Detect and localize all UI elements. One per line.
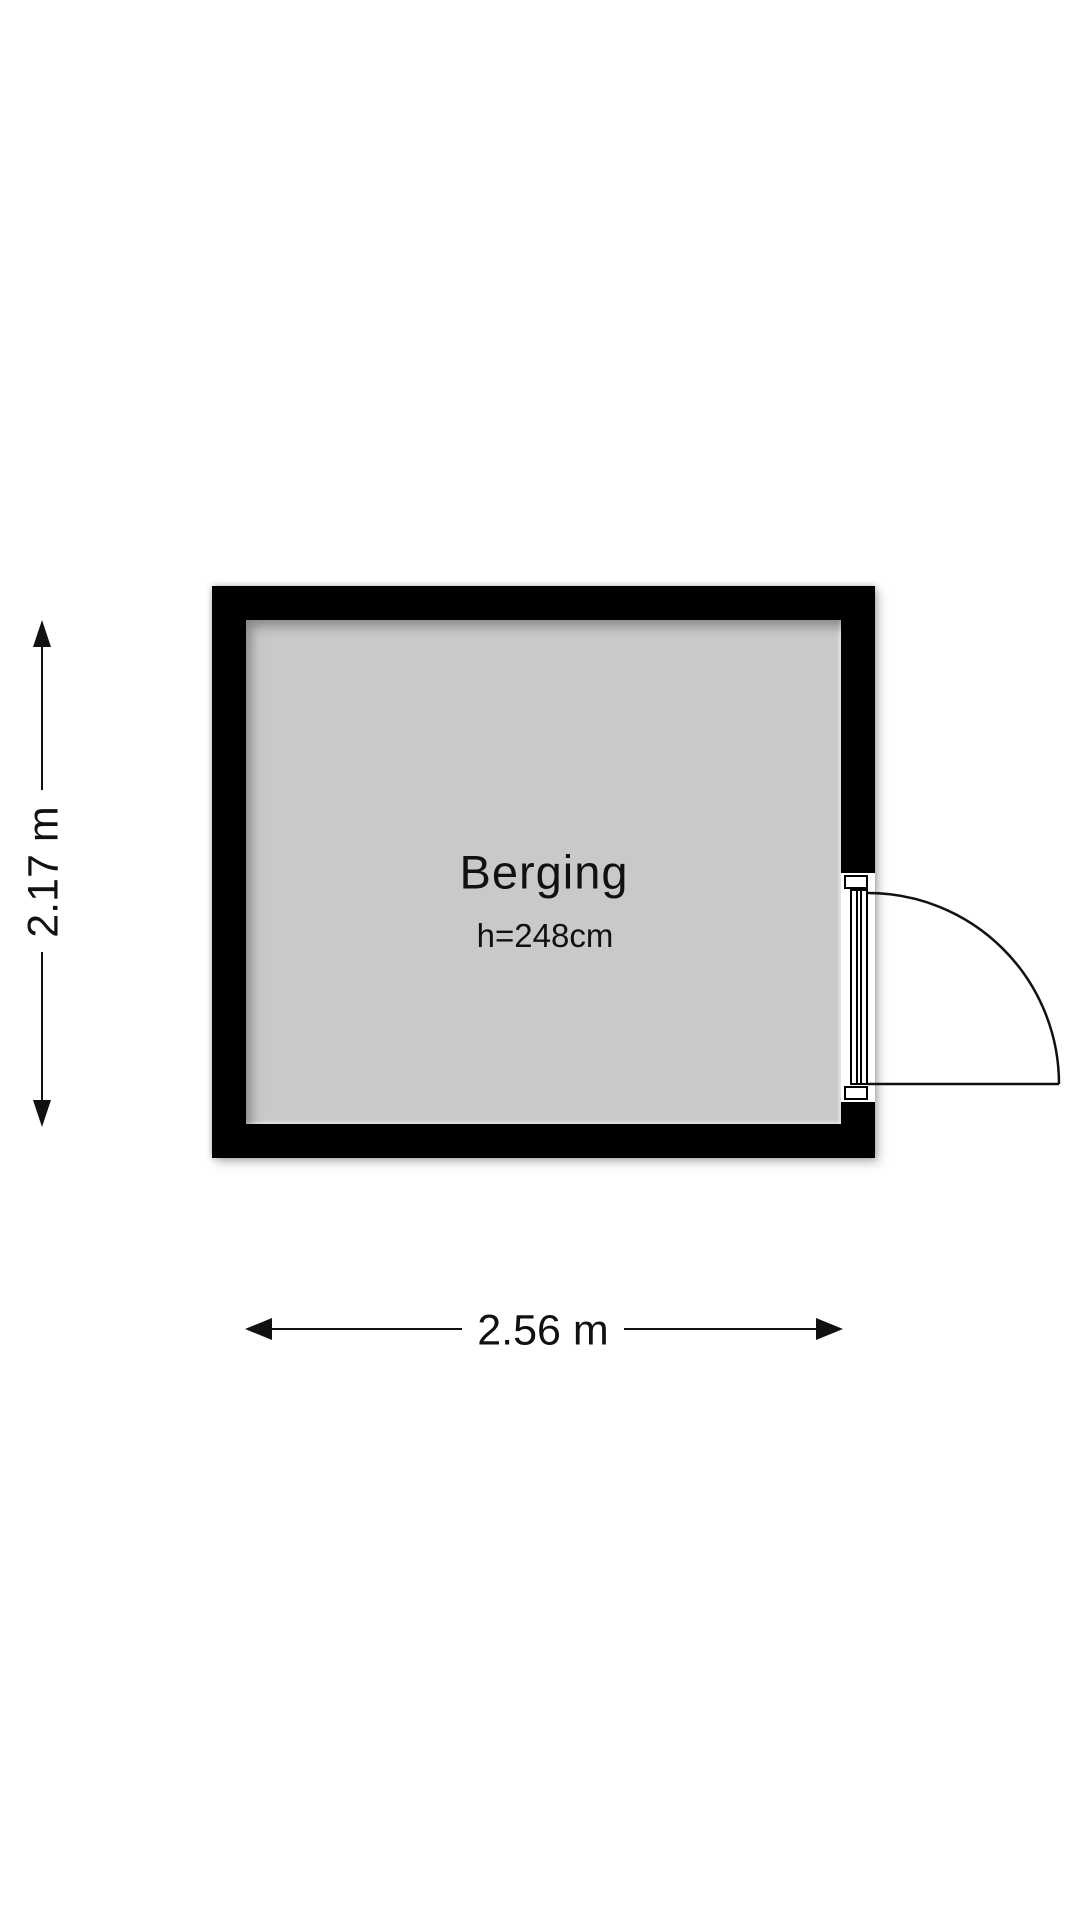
dimension-width-line-right xyxy=(624,1328,818,1330)
room-ceiling-height-label: h=248cm xyxy=(477,917,614,955)
floorplan-canvas: 2.17 m Berging h=248cm 2.56 m xyxy=(0,0,1080,1920)
door-jamb-bottom xyxy=(844,1086,868,1100)
dimension-height-line-upper xyxy=(41,645,43,790)
door-leaf-panel xyxy=(856,891,862,1083)
door-jamb-top xyxy=(844,875,868,889)
dimension-height-line-lower xyxy=(41,952,43,1102)
arrow-left-icon xyxy=(245,1318,272,1340)
arrow-right-icon xyxy=(816,1318,843,1340)
arrow-down-icon xyxy=(33,1100,51,1127)
room-name-label: Berging xyxy=(460,845,629,900)
dimension-height-label: 2.17 m xyxy=(20,806,69,937)
door-swing xyxy=(866,890,1066,1090)
dimension-width-label: 2.56 m xyxy=(477,1307,608,1356)
dimension-width-line-left xyxy=(270,1328,462,1330)
arrow-up-icon xyxy=(33,620,51,647)
door-swing-arc-icon xyxy=(868,893,1059,1084)
